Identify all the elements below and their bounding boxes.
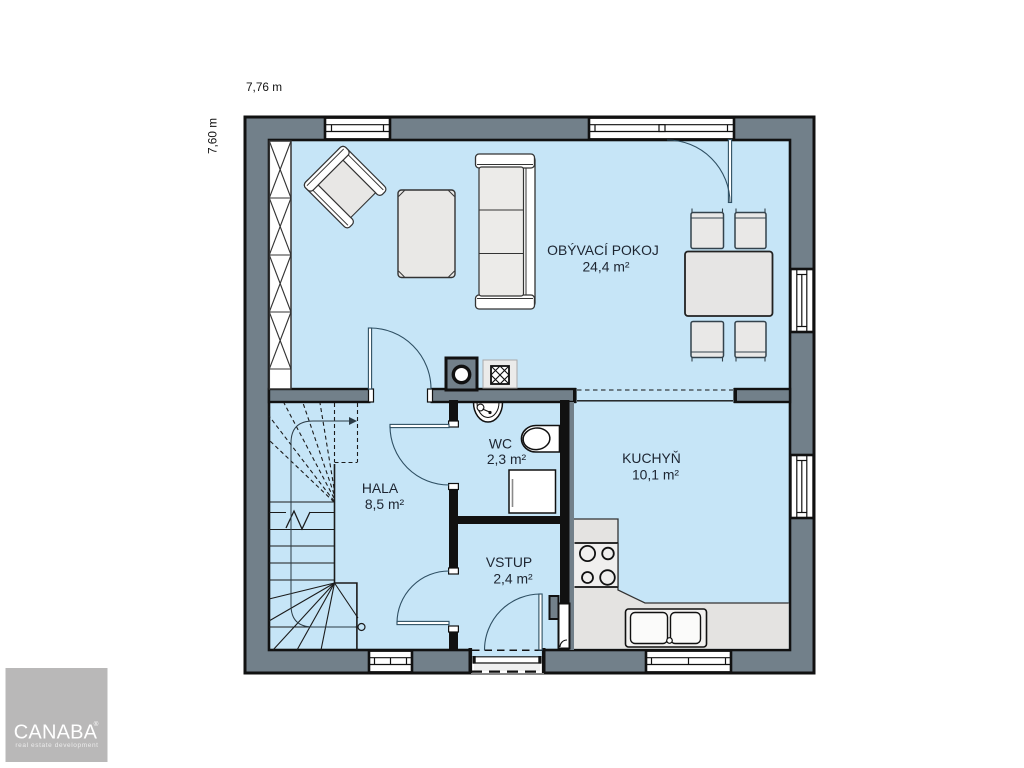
svg-text:7,76 m: 7,76 m <box>246 80 282 94</box>
svg-text:HALA: HALA <box>362 480 399 496</box>
svg-text:24,4 m²: 24,4 m² <box>582 259 629 275</box>
svg-text:CANABA: CANABA <box>14 722 98 744</box>
svg-text:7,60 m: 7,60 m <box>206 118 220 154</box>
svg-text:10,1 m²: 10,1 m² <box>632 467 679 483</box>
svg-text:8,5 m²: 8,5 m² <box>365 496 405 512</box>
svg-text:real estate development: real estate development <box>15 742 98 749</box>
svg-text:OBÝVACÍ POKOJ: OBÝVACÍ POKOJ <box>547 242 659 258</box>
svg-text:2,3 m²: 2,3 m² <box>487 451 527 467</box>
svg-text:VSTUP: VSTUP <box>486 554 532 570</box>
svg-text:KUCHYŇ: KUCHYŇ <box>622 450 681 466</box>
svg-text:2,4 m²: 2,4 m² <box>493 571 533 587</box>
svg-text:®: ® <box>94 720 99 728</box>
svg-text:WC: WC <box>489 436 512 452</box>
